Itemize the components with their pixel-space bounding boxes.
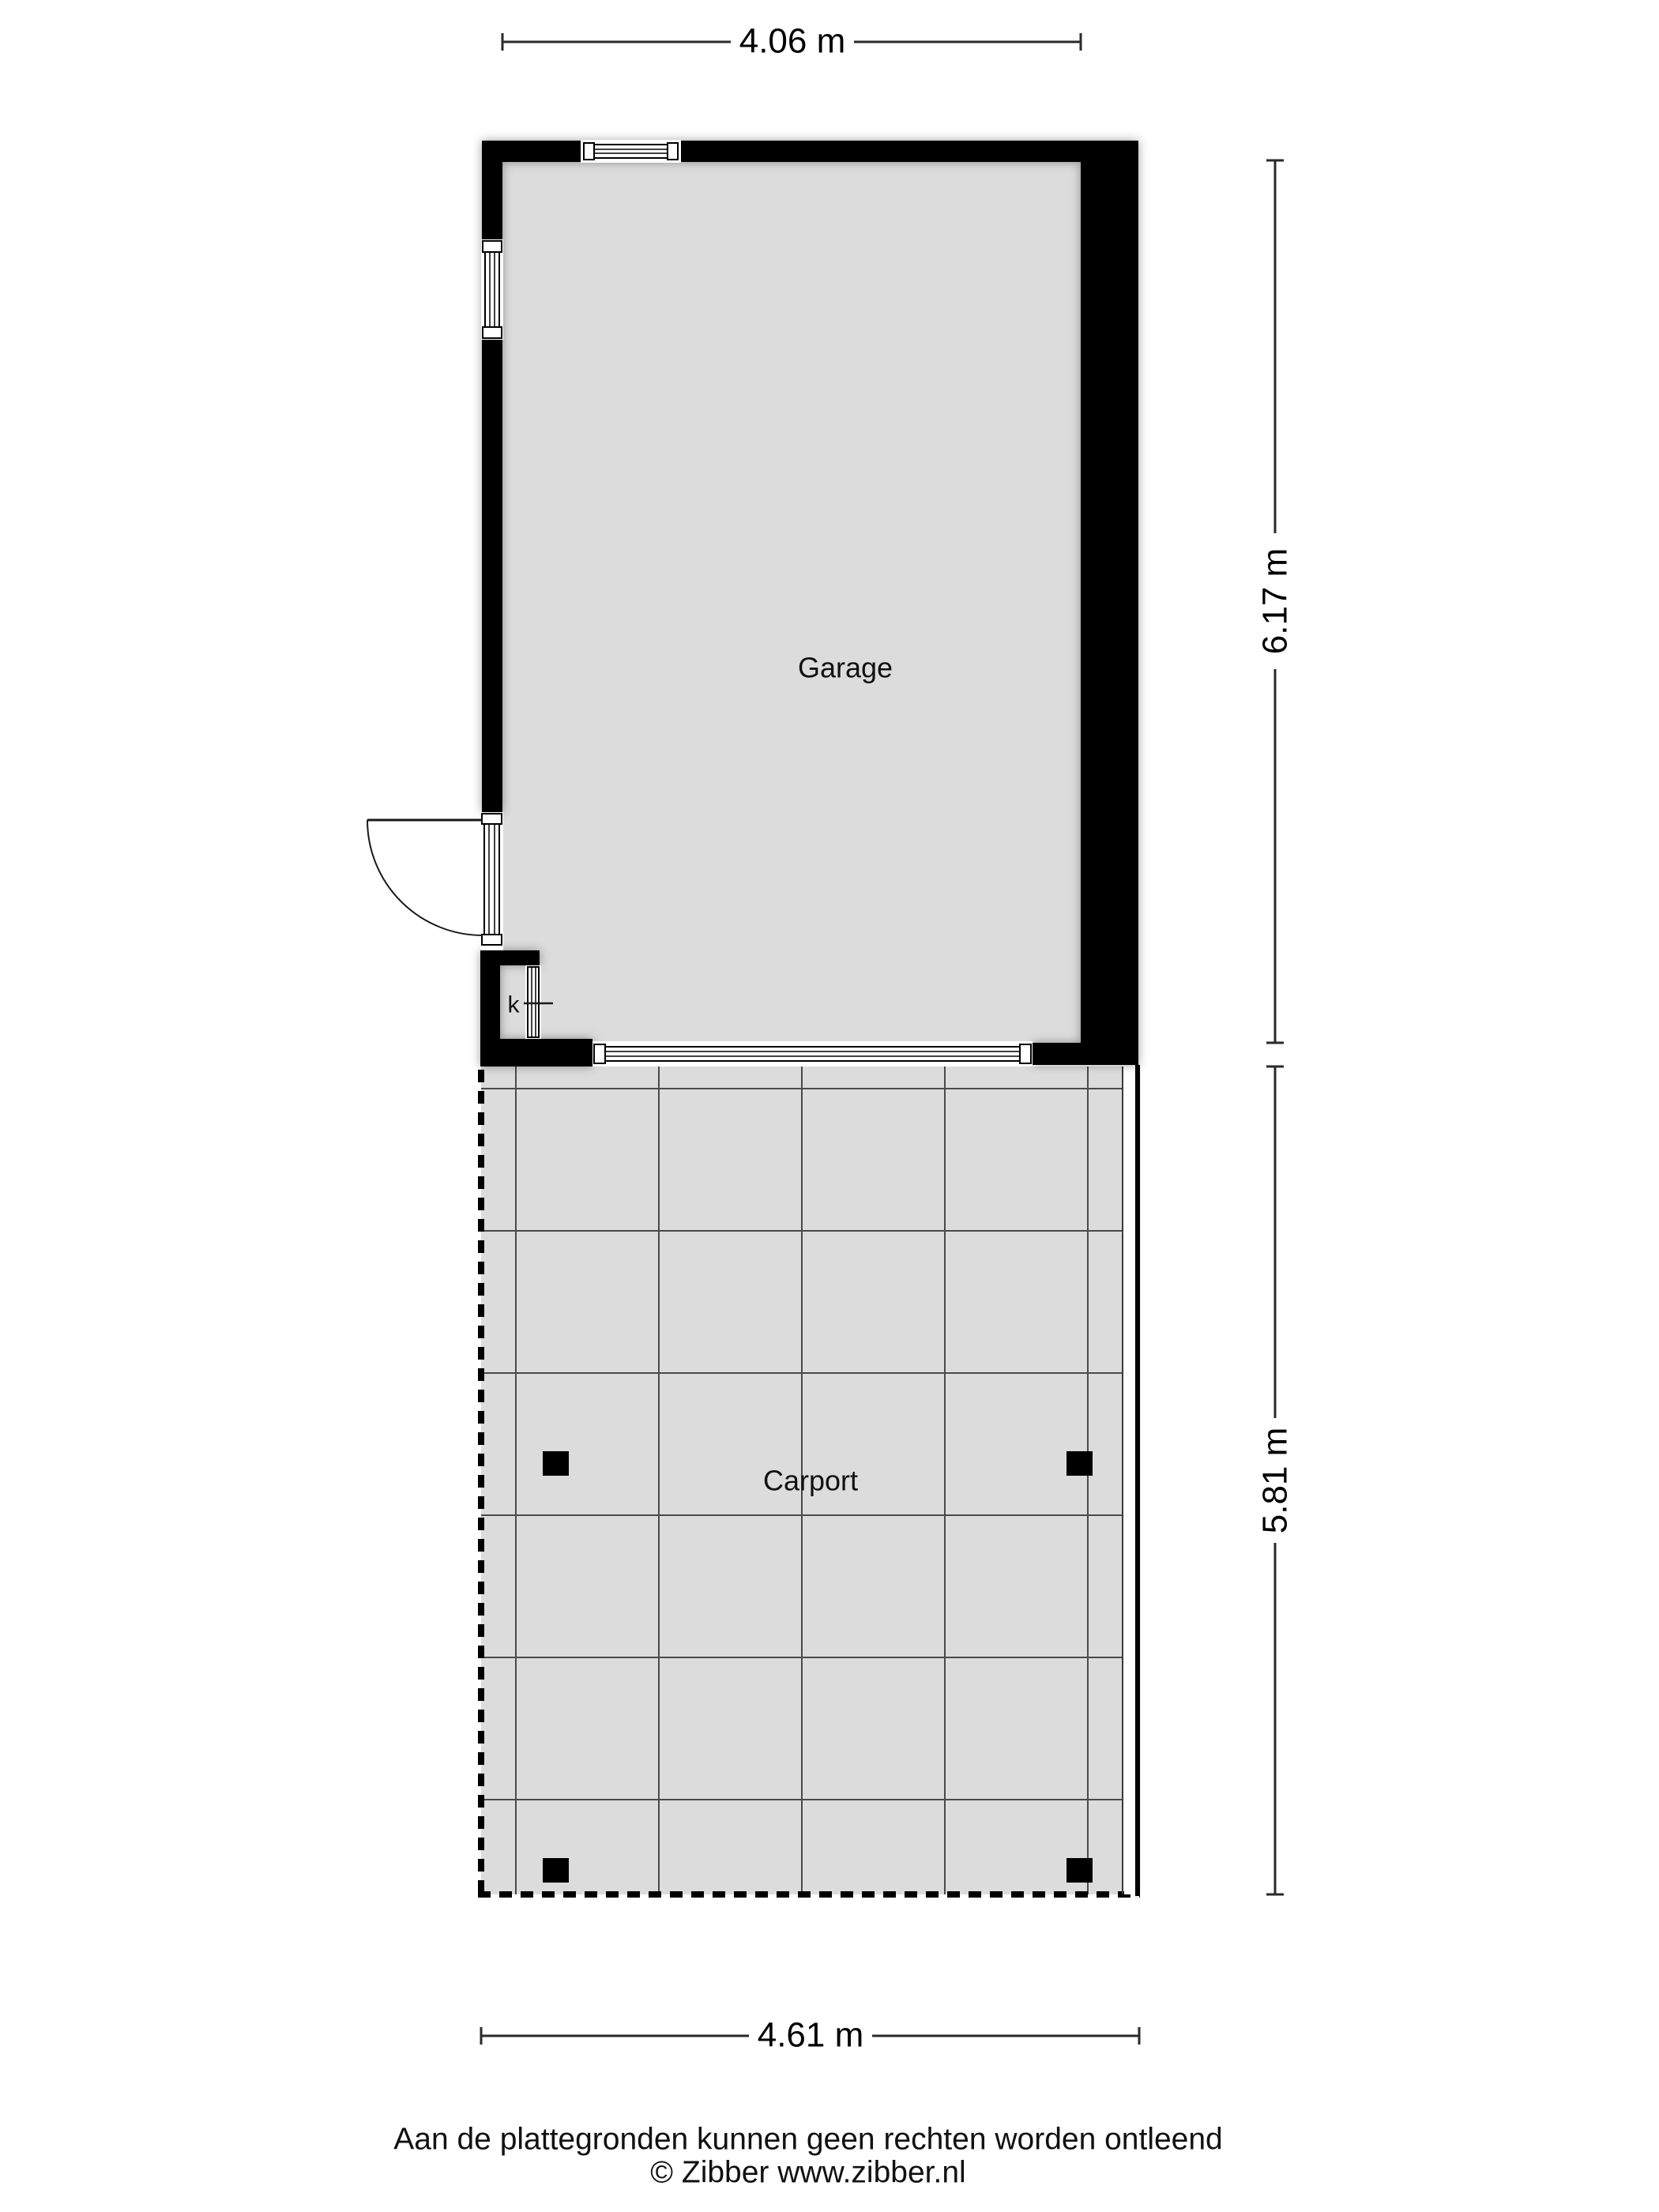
door-swing-arc	[367, 820, 483, 935]
garage-label: Garage	[798, 652, 893, 684]
carport-post-top-right	[1066, 1451, 1093, 1476]
wall-top	[482, 141, 1138, 162]
dimension-right-upper: 6.17 m	[1256, 160, 1295, 1043]
floorplan-canvas: Garage Carport k 4.06 m 6.17 m 5.81 m 4.…	[0, 0, 1659, 2212]
footer-disclaimer: Aan de plattegronden kunnen geen rechten…	[393, 2123, 1223, 2157]
closet-door	[525, 965, 541, 1039]
closet-label: k	[508, 992, 521, 1018]
wall-bottom-right	[1033, 1043, 1138, 1065]
garage-door	[592, 1041, 1033, 1066]
footer-copyright: © Zibber www.zibber.nl	[650, 2156, 965, 2190]
dimension-top: 4.06 m	[502, 22, 1081, 61]
dimension-bottom: 4.61 m	[481, 2016, 1139, 2055]
garage-floor	[502, 162, 1081, 1043]
carport-post-top-left	[543, 1451, 569, 1476]
dimension-right-upper-label: 6.17 m	[1256, 548, 1295, 655]
closet-wall-top	[480, 950, 540, 965]
carport-post-bottom-left	[543, 1858, 569, 1883]
carport-right-outer-edge	[1135, 1065, 1140, 1896]
left-window	[481, 239, 503, 340]
carport-label: Carport	[763, 1465, 858, 1497]
wall-right	[1081, 141, 1138, 1065]
carport-post-bottom-right	[1066, 1858, 1093, 1883]
top-window	[581, 140, 681, 163]
dimension-top-label: 4.06 m	[739, 22, 846, 61]
carport-right-open-strip	[1124, 1066, 1135, 1894]
entry-door	[367, 812, 503, 950]
dimension-bottom-label: 4.61 m	[758, 2016, 864, 2055]
dimension-right-lower: 5.81 m	[1256, 1066, 1295, 1894]
dimension-right-lower-label: 5.81 m	[1256, 1428, 1295, 1534]
wall-bottom-left	[480, 1039, 592, 1066]
